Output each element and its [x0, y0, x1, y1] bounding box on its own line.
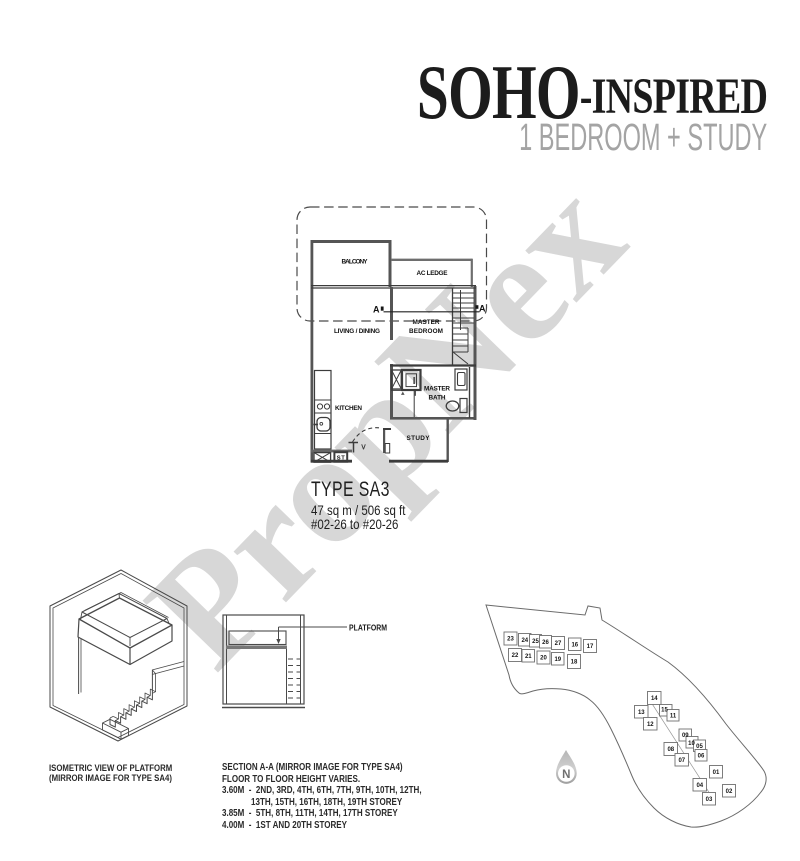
svg-text:22: 22 [512, 653, 519, 659]
svg-text:MASTER: MASTER [413, 319, 440, 326]
svg-text:08: 08 [667, 747, 674, 753]
svg-text:16: 16 [571, 642, 578, 648]
svg-text:PLATFORM: PLATFORM [349, 623, 387, 633]
svg-text:19: 19 [554, 657, 561, 663]
svg-text:01: 01 [713, 770, 720, 776]
svg-text:20: 20 [540, 656, 547, 662]
svg-text:02: 02 [726, 789, 733, 795]
svg-text:13: 13 [638, 710, 645, 716]
svg-text:03: 03 [706, 797, 713, 803]
svg-text:AC LEDGE: AC LEDGE [417, 270, 449, 277]
svg-text:A: A [479, 304, 486, 314]
svg-text:N: N [562, 769, 570, 781]
svg-text:LIVING / DINING: LIVING / DINING [334, 328, 380, 335]
svg-text:26: 26 [542, 640, 549, 646]
svg-text:23: 23 [507, 637, 514, 643]
svg-text:04: 04 [696, 783, 703, 789]
svg-text:05: 05 [696, 744, 703, 750]
svg-text:14: 14 [651, 696, 658, 702]
svg-text:24: 24 [521, 638, 528, 644]
svg-text:06: 06 [698, 753, 705, 759]
svg-text:27: 27 [555, 641, 562, 647]
svg-text:ST: ST [337, 456, 345, 462]
svg-text:15: 15 [661, 708, 668, 714]
svg-text:A: A [373, 305, 380, 315]
svg-text:09: 09 [682, 733, 689, 739]
svg-text:10: 10 [688, 741, 695, 747]
svg-text:07: 07 [678, 758, 685, 764]
svg-text:BEDROOM: BEDROOM [409, 328, 443, 335]
svg-text:12: 12 [647, 722, 654, 728]
svg-text:KITCHEN: KITCHEN [335, 405, 362, 412]
svg-text:21: 21 [525, 654, 532, 660]
svg-text:STUDY: STUDY [407, 435, 431, 442]
svg-text:18: 18 [571, 660, 578, 666]
svg-text:17: 17 [587, 644, 594, 650]
svg-text:MASTER: MASTER [424, 386, 450, 393]
svg-text:BALCONY: BALCONY [342, 259, 369, 266]
svg-text:11: 11 [670, 714, 677, 720]
svg-text:BATH: BATH [429, 395, 446, 402]
svg-text:25: 25 [532, 639, 539, 645]
